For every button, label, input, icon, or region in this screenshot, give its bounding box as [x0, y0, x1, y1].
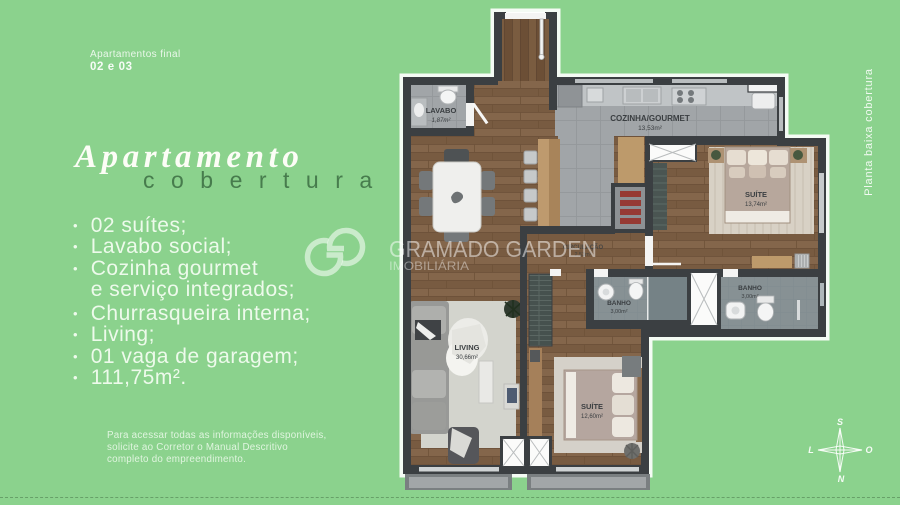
svg-text:COZINHA/GOURMET: COZINHA/GOURMET [610, 114, 690, 123]
svg-text:SUÍTE: SUÍTE [745, 190, 767, 199]
svg-text:12,60m²: 12,60m² [581, 414, 603, 420]
svg-text:SUÍTE: SUÍTE [581, 402, 603, 411]
svg-text:GRAMADO GARDEN: GRAMADO GARDEN [389, 236, 597, 262]
svg-text:S: S [837, 417, 843, 427]
svg-text:1,87m²: 1,87m² [432, 118, 452, 124]
svg-text:IMOBILIÁRIA: IMOBILIÁRIA [389, 260, 469, 273]
svg-text:L: L [808, 445, 814, 455]
svg-text:30,66m²: 30,66m² [456, 355, 478, 361]
svg-text:O: O [865, 445, 872, 455]
svg-text:3,00m²: 3,00m² [610, 309, 627, 315]
svg-text:LAVABO: LAVABO [426, 106, 457, 115]
svg-text:3,00m²: 3,00m² [741, 294, 758, 300]
svg-text:13,74m²: 13,74m² [745, 202, 767, 208]
svg-text:LIVING: LIVING [454, 343, 479, 352]
svg-text:N: N [838, 474, 845, 484]
svg-text:BANHO: BANHO [607, 300, 631, 307]
svg-text:BANHO: BANHO [738, 285, 762, 292]
svg-text:13,53m²: 13,53m² [638, 125, 663, 132]
